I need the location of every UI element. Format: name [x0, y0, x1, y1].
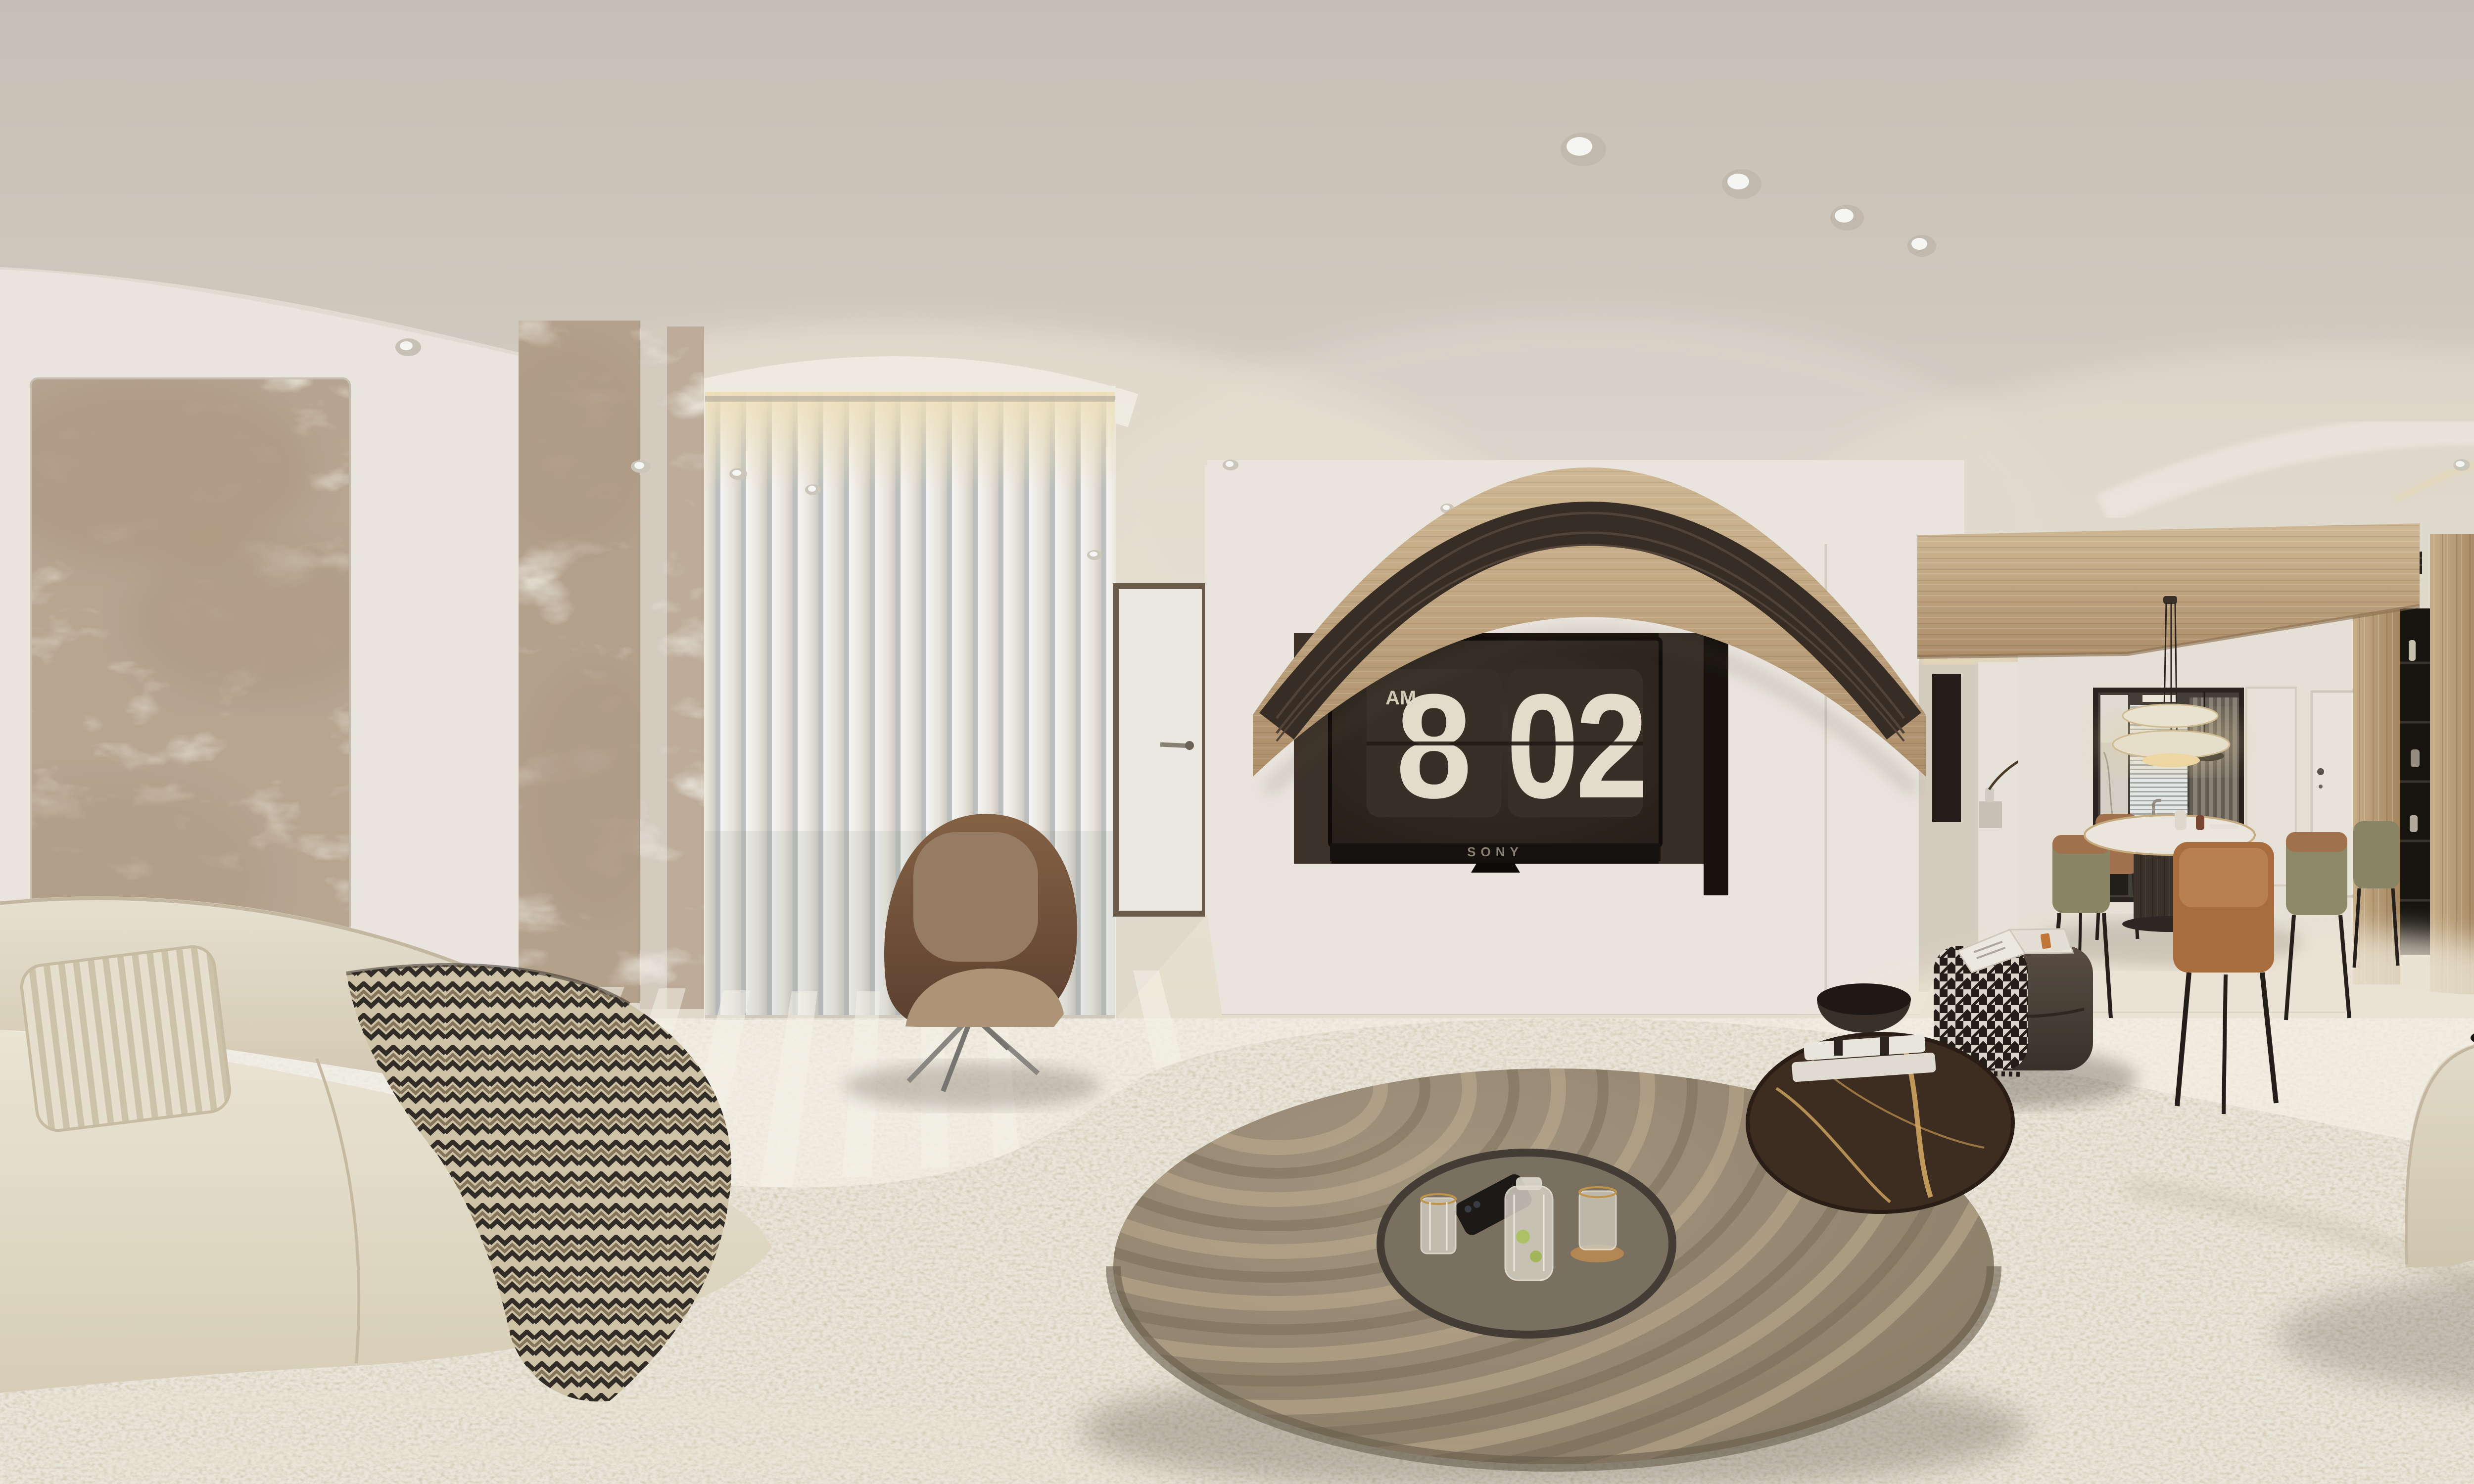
vignette	[0, 0, 2474, 1484]
panorama-stage: AM 8 02 SONY	[0, 0, 2474, 1484]
interior-panorama: AM 8 02 SONY	[0, 0, 2474, 1484]
